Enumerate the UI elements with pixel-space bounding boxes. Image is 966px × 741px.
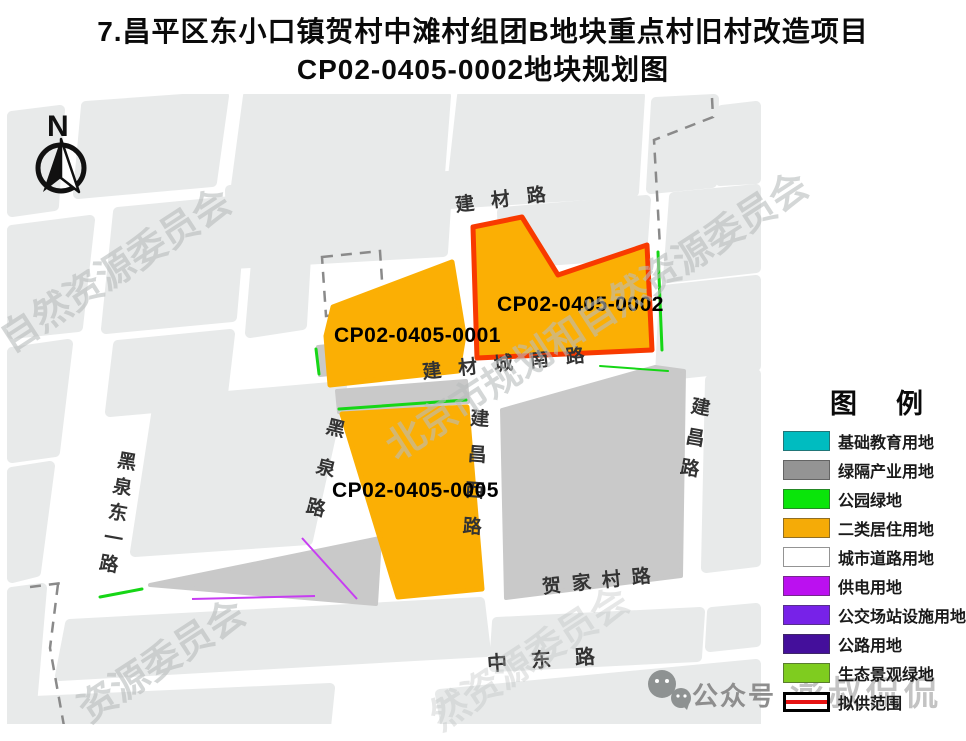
legend-label: 公路用地: [838, 632, 902, 656]
legend-swatch-industry: [783, 460, 830, 480]
map-block: [12, 344, 68, 458]
legend-row-road: 城市道路用地: [770, 547, 966, 567]
plan-map: [6, 94, 762, 724]
parcel-label-0001: CP02-0405-0001: [334, 324, 501, 348]
legend-row-transit: 公交场站设施用地: [770, 605, 966, 625]
legend-swatch-park: [783, 489, 830, 509]
map-block: [12, 466, 50, 578]
legend-swatch-power: [783, 576, 830, 596]
legend-label: 供电用地: [838, 574, 902, 598]
page-title-line2: CP02-0405-0002地块规划图: [0, 48, 966, 88]
legend-row-park: 公园绿地: [770, 489, 966, 509]
legend-label: 绿隔产业用地: [838, 458, 934, 482]
map-block: [106, 200, 242, 329]
legend-row-power: 供电用地: [770, 576, 966, 596]
legend-swatch-transit: [783, 605, 830, 625]
parcel-label-0002: CP02-0405-0002: [497, 293, 664, 317]
legend-row-industry: 绿隔产业用地: [770, 460, 966, 480]
legend-row-highway: 公路用地: [770, 634, 966, 654]
legend-row-supply-range: 拟供范围: [770, 692, 966, 712]
legend-title: 图 例: [770, 382, 966, 421]
legend-swatch-education: [783, 431, 830, 451]
map-block: [710, 608, 756, 647]
map-canvas: [6, 94, 762, 724]
north-compass-icon: [28, 130, 94, 198]
legend-label: 公园绿地: [838, 487, 902, 511]
industry-parcel-large: [502, 367, 684, 598]
map-block: [60, 602, 486, 676]
green-sliver: [100, 589, 142, 597]
map-block: [651, 99, 714, 189]
legend-label: 城市道路用地: [838, 545, 934, 569]
map-block: [78, 96, 224, 194]
map-block: [236, 96, 446, 186]
legend-swatch-eco-green: [783, 663, 830, 683]
plan-page: { "title": { "line1": "7.昌平区东小口镇贺村中滩村组团B…: [0, 0, 966, 727]
legend-swatch-supply-range: [783, 692, 830, 712]
page-title-line1: 7.昌平区东小口镇贺村中滩村组团B地块重点村旧村改造项目: [0, 10, 966, 50]
supply-range-line: [786, 700, 827, 704]
map-block: [668, 189, 756, 278]
legend-row-education: 基础教育用地: [770, 431, 966, 451]
map-block: [230, 176, 448, 264]
legend-label: 二类居住用地: [838, 516, 934, 540]
legend-label: 拟供范围: [838, 690, 902, 714]
legend-swatch-residential: [783, 518, 830, 538]
legend-swatch-highway: [783, 634, 830, 654]
map-block: [12, 588, 42, 708]
legend-swatch-road: [783, 547, 830, 567]
map-block: [706, 374, 756, 568]
wechat-icon: [645, 668, 695, 714]
legend-label: 生态景观绿地: [838, 661, 934, 685]
map-block: [720, 106, 756, 181]
legend-label: 公交场站设施用地: [838, 603, 966, 627]
map-block: [12, 220, 90, 334]
legend-row-residential: 二类居住用地: [770, 518, 966, 538]
legend-panel: 图 例 基础教育用地 绿隔产业用地 公园绿地 二类居住用地 城市道路用地 供电用…: [770, 382, 966, 721]
parcel-label-0005: CP02-0405-0005: [332, 479, 499, 503]
wechat-public-account-label: 公众号: [692, 676, 776, 713]
legend-row-eco-green: 生态景观绿地: [770, 663, 966, 683]
legend-label: 基础教育用地: [838, 429, 934, 453]
map-block: [660, 280, 756, 376]
